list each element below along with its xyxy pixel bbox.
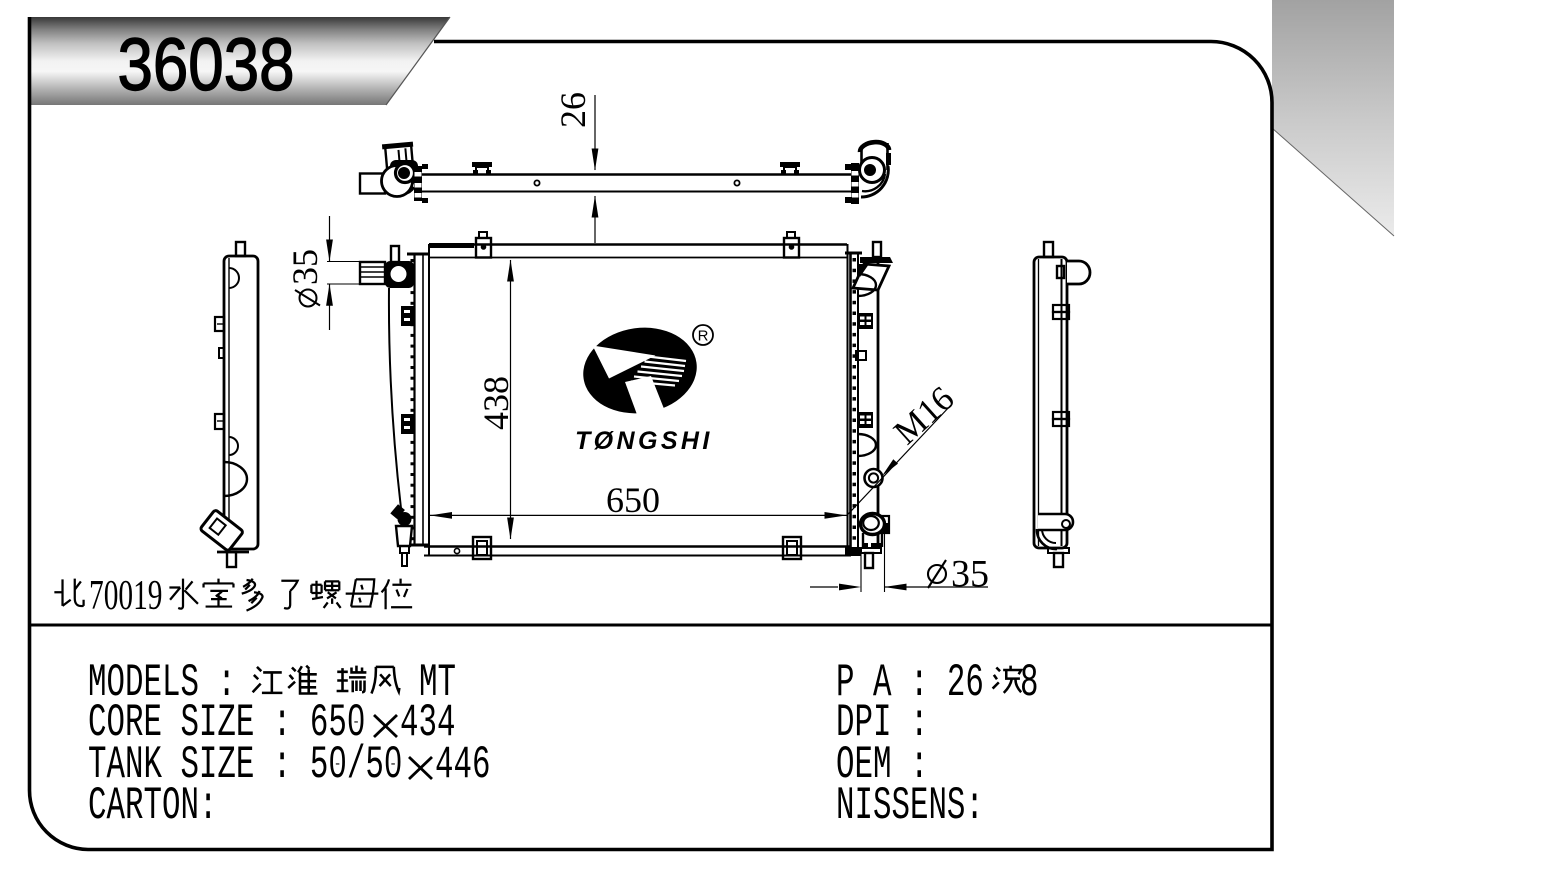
svg-text:TØNGSHI: TØNGSHI	[575, 427, 713, 455]
svg-text:26: 26	[553, 92, 593, 128]
svg-text:NISSENS:: NISSENS:	[836, 779, 984, 832]
svg-text:35: 35	[285, 249, 325, 285]
svg-text:R: R	[698, 328, 709, 345]
svg-text:650: 650	[606, 480, 660, 520]
svg-text:M16: M16	[886, 379, 961, 452]
svg-text:70019: 70019	[89, 572, 162, 618]
svg-text:8: 8	[1020, 656, 1038, 709]
svg-text:CARTON:: CARTON:	[88, 779, 217, 832]
svg-text:36038: 36038	[118, 24, 295, 107]
svg-text:35: 35	[951, 553, 989, 595]
svg-text:438: 438	[476, 376, 516, 430]
svg-text:446: 446	[435, 738, 490, 791]
